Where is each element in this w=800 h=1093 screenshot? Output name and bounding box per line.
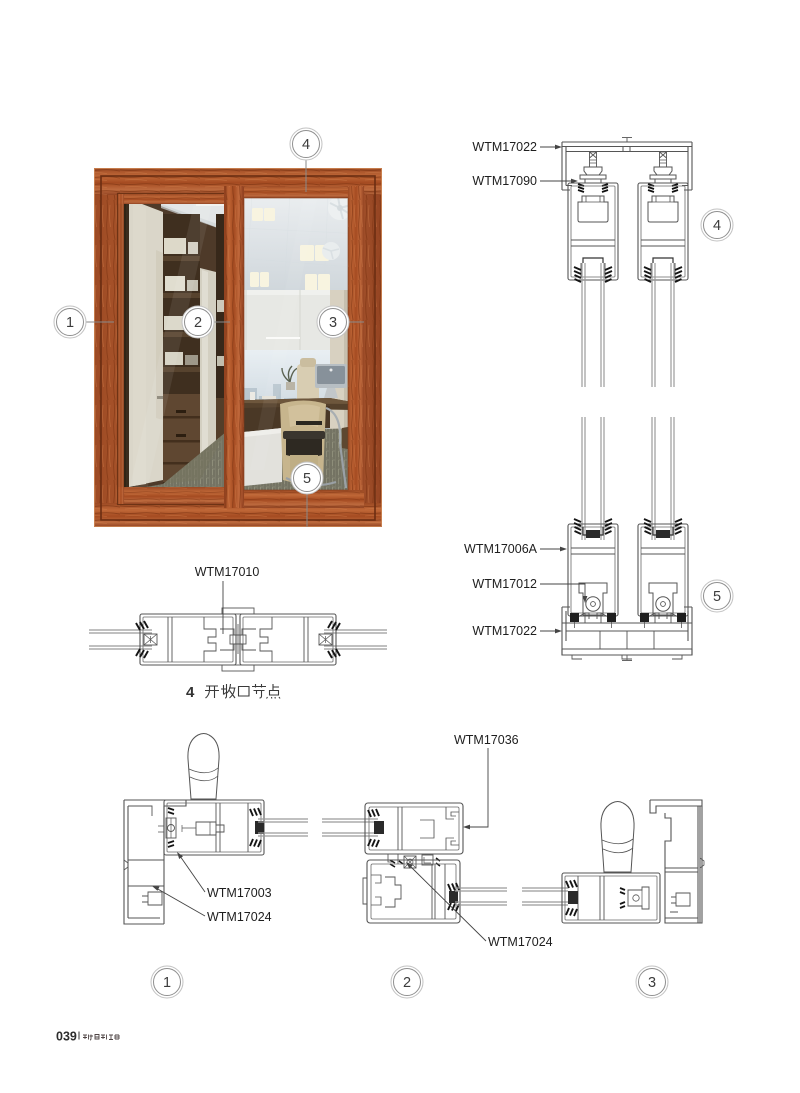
svg-text:WTM17022: WTM17022 [472,140,537,154]
svg-text:5: 5 [303,471,311,487]
svg-text:4: 4 [713,218,721,234]
svg-text:WTM17090: WTM17090 [472,174,537,188]
svg-text:WTM17012: WTM17012 [472,577,537,591]
svg-text:3: 3 [648,975,656,991]
svg-text:5: 5 [713,589,721,605]
svg-text:4: 4 [186,684,195,701]
svg-text:WTM17010: WTM17010 [195,565,260,579]
svg-text:2: 2 [194,315,202,331]
svg-text:WTM17022: WTM17022 [472,624,537,638]
svg-text:2: 2 [403,975,411,991]
svg-text:3: 3 [329,315,337,331]
svg-text:WTM17024: WTM17024 [207,910,272,924]
svg-text:WTM17024: WTM17024 [488,935,553,949]
svg-text:1: 1 [66,315,74,331]
svg-text:4: 4 [302,137,310,153]
svg-text:WTM17003: WTM17003 [207,886,272,900]
svg-text:WTM17036: WTM17036 [454,733,519,747]
svg-text:WTM17006A: WTM17006A [464,542,538,556]
svg-text:039: 039 [56,1030,77,1044]
svg-text:1: 1 [163,975,171,991]
